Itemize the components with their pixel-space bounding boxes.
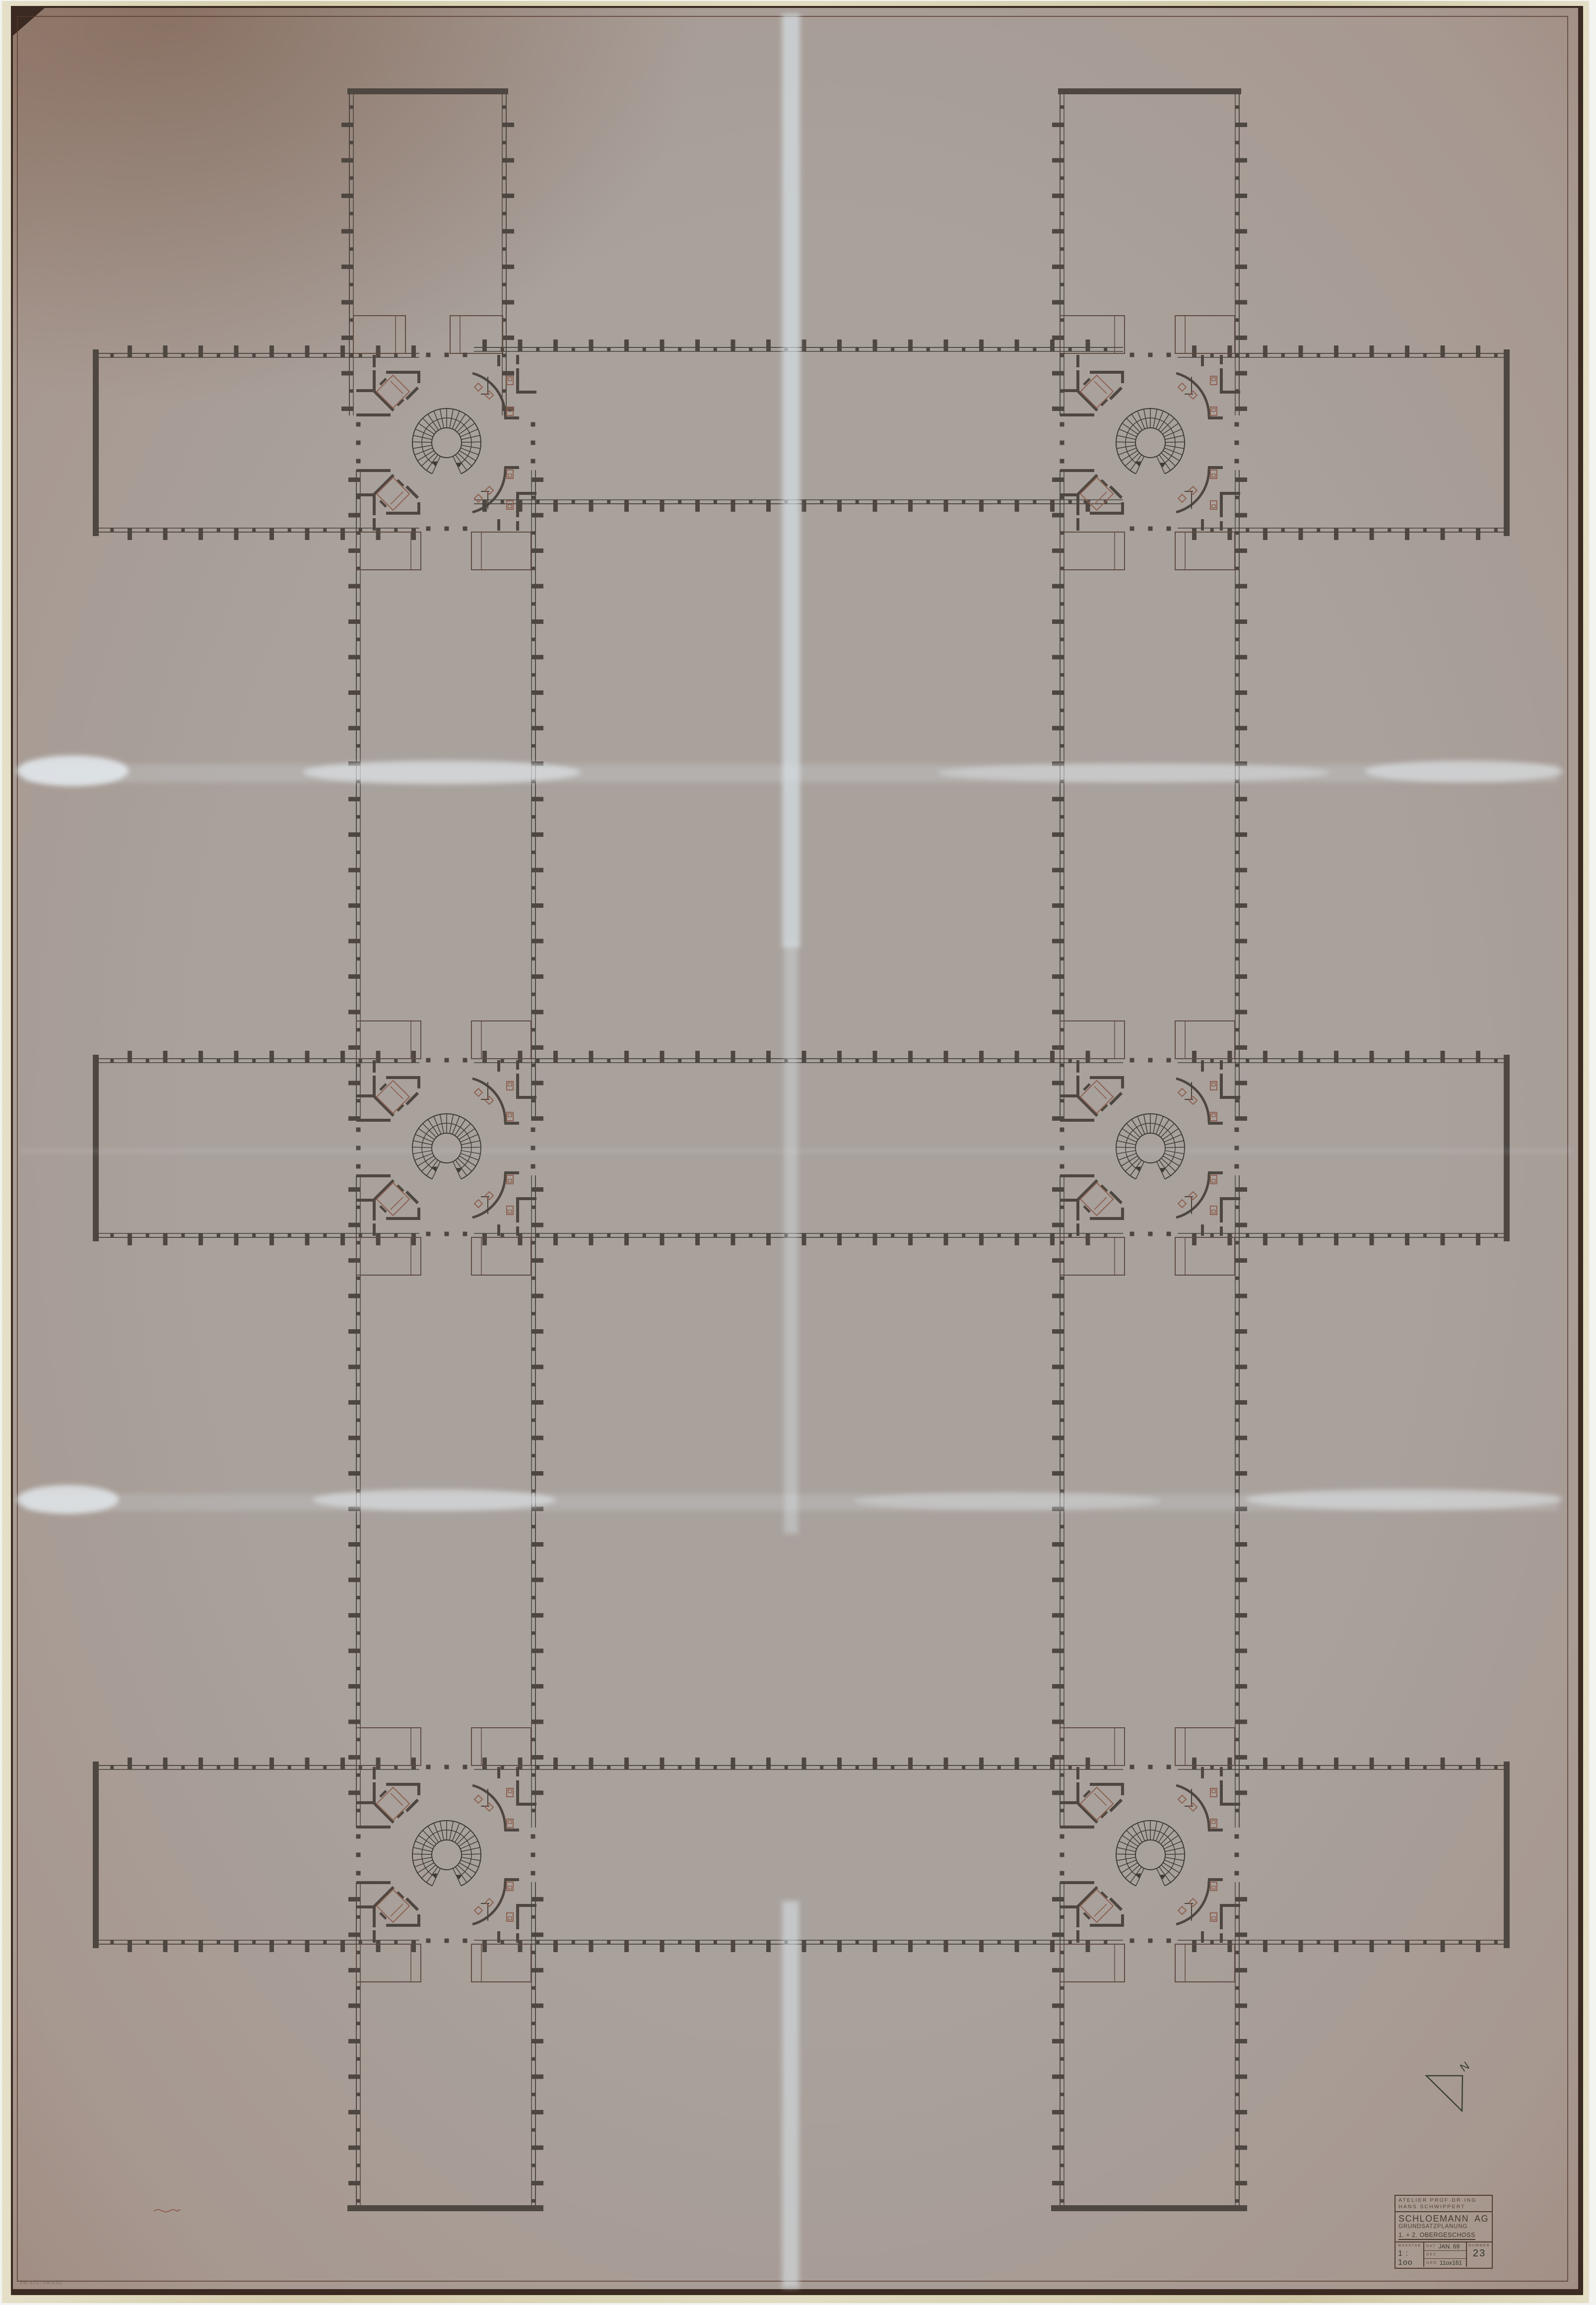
title-block-grid: MASSTAB 1 : 1oo DAT JAN. 69 GEZ GRÖ 11ox… — [1396, 2242, 1492, 2267]
pencil-margin-note: 86-1f1-1wN32 — [19, 2280, 64, 2286]
atelier-line1: ATELIER PROF·DR·ING — [1398, 2197, 1492, 2204]
title-block: ATELIER PROF·DR·ING HANS SCHWIPPERT SCHL… — [1395, 2195, 1493, 2269]
stair-node — [1060, 1728, 1241, 1982]
stair-node — [1060, 316, 1241, 570]
gro-row: GRÖ 11ox161 — [1424, 2259, 1466, 2267]
gez-label: GEZ — [1426, 2253, 1436, 2256]
north-arrow: N — [1417, 2057, 1476, 2117]
client-suffix: AG — [1474, 2214, 1489, 2224]
sheet-number: 23 — [1467, 2248, 1492, 2259]
dat-label: DAT — [1426, 2244, 1436, 2248]
title-block-atelier: ATELIER PROF·DR·ING HANS SCHWIPPERT — [1396, 2196, 1492, 2212]
masstab-value: 1 : 1oo — [1398, 2249, 1423, 2267]
gro-value: 11ox161 — [1440, 2259, 1462, 2266]
gro-label: GRÖ — [1426, 2261, 1437, 2265]
north-arrow-triangle — [1426, 2076, 1463, 2111]
title-block-project: SCHLOEMANN AG GRUNDSATZPLANUNG 1. + 2. O… — [1396, 2212, 1492, 2242]
stair-node — [353, 316, 536, 570]
sheet-title-row: 1. + 2. OBERGESCHOSS — [1398, 2232, 1489, 2238]
stair-node — [356, 1021, 537, 1275]
date-cells: DAT JAN. 69 GEZ GRÖ 11ox161 — [1424, 2242, 1467, 2267]
dat-row: DAT JAN. 69 — [1424, 2242, 1466, 2251]
masstab-cell: MASSTAB 1 : 1oo — [1396, 2242, 1424, 2267]
project-name: GRUNDSATZPLANUNG — [1398, 2224, 1489, 2230]
scanned-drawing-stage: ATELIER PROF·DR·ING HANS SCHWIPPERT SCHL… — [0, 0, 1596, 2305]
client-name-row: SCHLOEMANN AG — [1398, 2214, 1489, 2224]
nummer-cell: NUMMER 23 — [1467, 2242, 1492, 2267]
stair-node — [1060, 1021, 1241, 1275]
north-arrow-label: N — [1458, 2059, 1472, 2074]
stair-node — [356, 1728, 537, 1982]
dat-value: JAN. 69 — [1438, 2243, 1460, 2250]
masstab-label: MASSTAB — [1398, 2244, 1423, 2247]
atelier-line2: HANS SCHWIPPERT — [1398, 2204, 1492, 2210]
nummer-label: NUMMER — [1467, 2244, 1492, 2247]
sheet-title: 1. + 2. OBERGESCHOSS — [1398, 2232, 1475, 2240]
floor-plan-drawing — [0, 0, 1596, 2305]
gez-row: GEZ — [1424, 2251, 1466, 2259]
client-name: SCHLOEMANN — [1398, 2214, 1469, 2224]
